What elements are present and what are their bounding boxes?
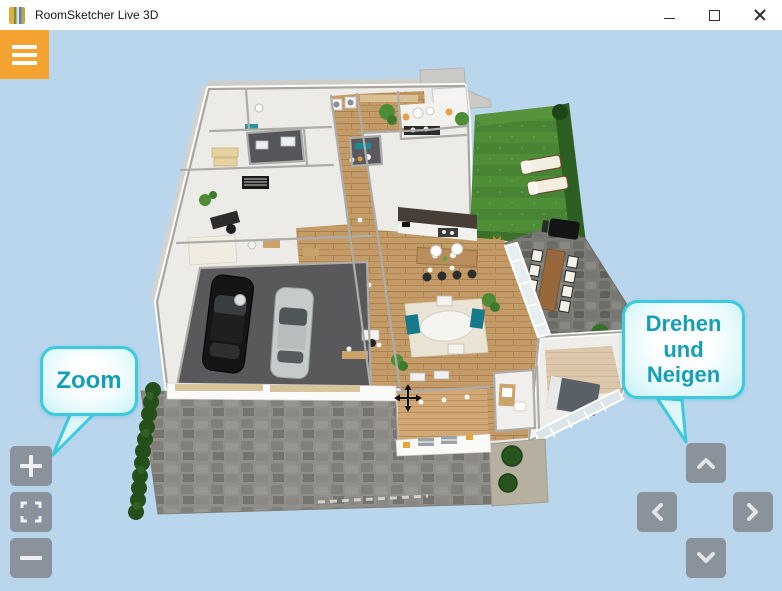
zoom-callout-text: Zoom [56, 367, 121, 395]
rotate-callout-line1: Drehen [646, 311, 722, 336]
zoom-callout-tail [45, 408, 105, 463]
minus-icon [19, 546, 43, 570]
bathroom-floor [247, 129, 304, 164]
app-logo-icon [9, 7, 25, 24]
fullscreen-button[interactable] [10, 492, 52, 532]
rotate-left-button[interactable] [637, 492, 677, 532]
maximize-icon [709, 10, 720, 21]
close-icon [754, 9, 766, 21]
close-button[interactable] [737, 0, 782, 30]
titlebar: RoomSketcher Live 3D [0, 0, 782, 30]
rotate-right-button[interactable] [733, 492, 773, 532]
fullscreen-icon [20, 501, 42, 523]
silver-car [270, 287, 314, 379]
plus-icon [19, 454, 43, 478]
window-title: RoomSketcher Live 3D [35, 8, 158, 22]
rotate-callout-tail [650, 392, 695, 447]
window-controls [647, 0, 782, 30]
zoom-in-button[interactable] [10, 446, 52, 486]
garden-path [489, 439, 548, 506]
rotate-callout-line3: Neigen [647, 362, 720, 387]
zoom-callout: Zoom [40, 346, 138, 416]
chevron-right-icon [746, 502, 760, 522]
tilt-up-button[interactable] [686, 443, 726, 483]
zoom-out-button[interactable] [10, 538, 52, 578]
rotate-callout-line2: und [663, 337, 703, 362]
maximize-button[interactable] [692, 0, 737, 30]
garage-pillar [235, 295, 246, 306]
hamburger-menu-icon [12, 45, 37, 49]
chevron-left-icon [650, 502, 664, 522]
rotate-tilt-callout: Drehen und Neigen [622, 300, 745, 399]
tilt-down-button[interactable] [686, 538, 726, 578]
minimize-icon [664, 18, 675, 19]
conifer-tree [552, 104, 568, 120]
minimize-button[interactable] [647, 0, 692, 30]
chevron-up-icon [696, 456, 716, 470]
chevron-down-icon [696, 551, 716, 565]
menu-button[interactable] [0, 30, 49, 79]
